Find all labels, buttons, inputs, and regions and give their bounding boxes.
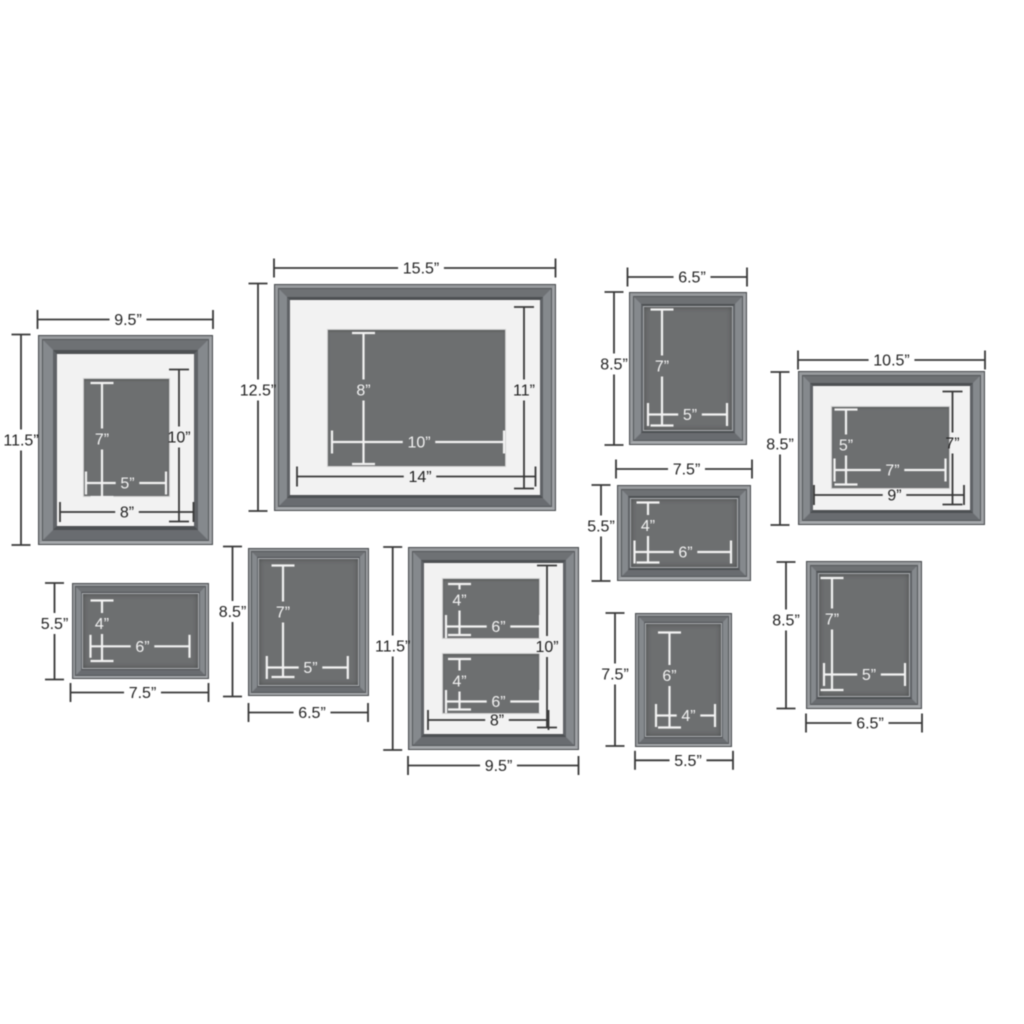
svg-text:4”: 4”: [681, 708, 695, 725]
svg-text:5.5”: 5.5”: [587, 519, 615, 536]
svg-text:7.5”: 7.5”: [129, 685, 157, 702]
svg-text:7.5”: 7.5”: [673, 462, 701, 479]
svg-text:6”: 6”: [135, 639, 149, 656]
svg-text:4”: 4”: [452, 674, 466, 691]
svg-text:4”: 4”: [95, 616, 109, 633]
svg-text:8.5”: 8.5”: [766, 437, 794, 454]
svg-text:8.5”: 8.5”: [219, 604, 247, 621]
svg-text:11”: 11”: [513, 383, 535, 400]
svg-text:7”: 7”: [825, 612, 839, 629]
svg-text:15.5”: 15.5”: [403, 261, 439, 278]
svg-text:9”: 9”: [887, 488, 901, 505]
svg-text:6”: 6”: [491, 694, 505, 711]
svg-text:7”: 7”: [945, 436, 959, 453]
svg-text:4”: 4”: [641, 518, 655, 535]
svg-text:8.5”: 8.5”: [600, 357, 628, 374]
svg-text:10”: 10”: [535, 639, 558, 656]
svg-text:10”: 10”: [167, 430, 190, 447]
svg-text:11.5”: 11.5”: [375, 639, 410, 656]
svg-text:10”: 10”: [407, 435, 430, 452]
svg-text:8”: 8”: [490, 713, 504, 730]
svg-text:5”: 5”: [862, 667, 876, 684]
svg-text:4”: 4”: [452, 593, 466, 610]
svg-text:12.5”: 12.5”: [240, 383, 276, 400]
svg-text:5”: 5”: [683, 407, 697, 424]
svg-text:14”: 14”: [408, 469, 431, 486]
svg-text:5.5”: 5.5”: [674, 753, 702, 770]
svg-text:6”: 6”: [662, 668, 676, 685]
svg-text:9.5”: 9.5”: [114, 312, 142, 329]
svg-text:5”: 5”: [839, 438, 853, 455]
svg-text:8”: 8”: [356, 383, 370, 400]
svg-text:7”: 7”: [276, 605, 290, 622]
svg-text:9.5”: 9.5”: [485, 758, 513, 775]
svg-text:5.5”: 5.5”: [41, 616, 69, 633]
svg-text:7”: 7”: [95, 432, 109, 449]
svg-text:8”: 8”: [120, 505, 134, 522]
svg-text:6”: 6”: [678, 545, 692, 562]
svg-text:8.5”: 8.5”: [772, 613, 800, 630]
svg-text:7”: 7”: [885, 463, 899, 480]
svg-text:11.5”: 11.5”: [3, 433, 38, 450]
svg-text:10.5”: 10.5”: [873, 353, 909, 370]
svg-text:6”: 6”: [491, 619, 505, 636]
svg-text:6.5”: 6.5”: [298, 705, 326, 722]
svg-text:6.5”: 6.5”: [856, 716, 884, 733]
svg-text:7.5”: 7.5”: [601, 667, 629, 684]
svg-text:5”: 5”: [303, 660, 317, 677]
svg-text:5”: 5”: [120, 476, 134, 493]
svg-text:7”: 7”: [655, 359, 669, 376]
svg-text:6.5”: 6.5”: [678, 270, 706, 287]
